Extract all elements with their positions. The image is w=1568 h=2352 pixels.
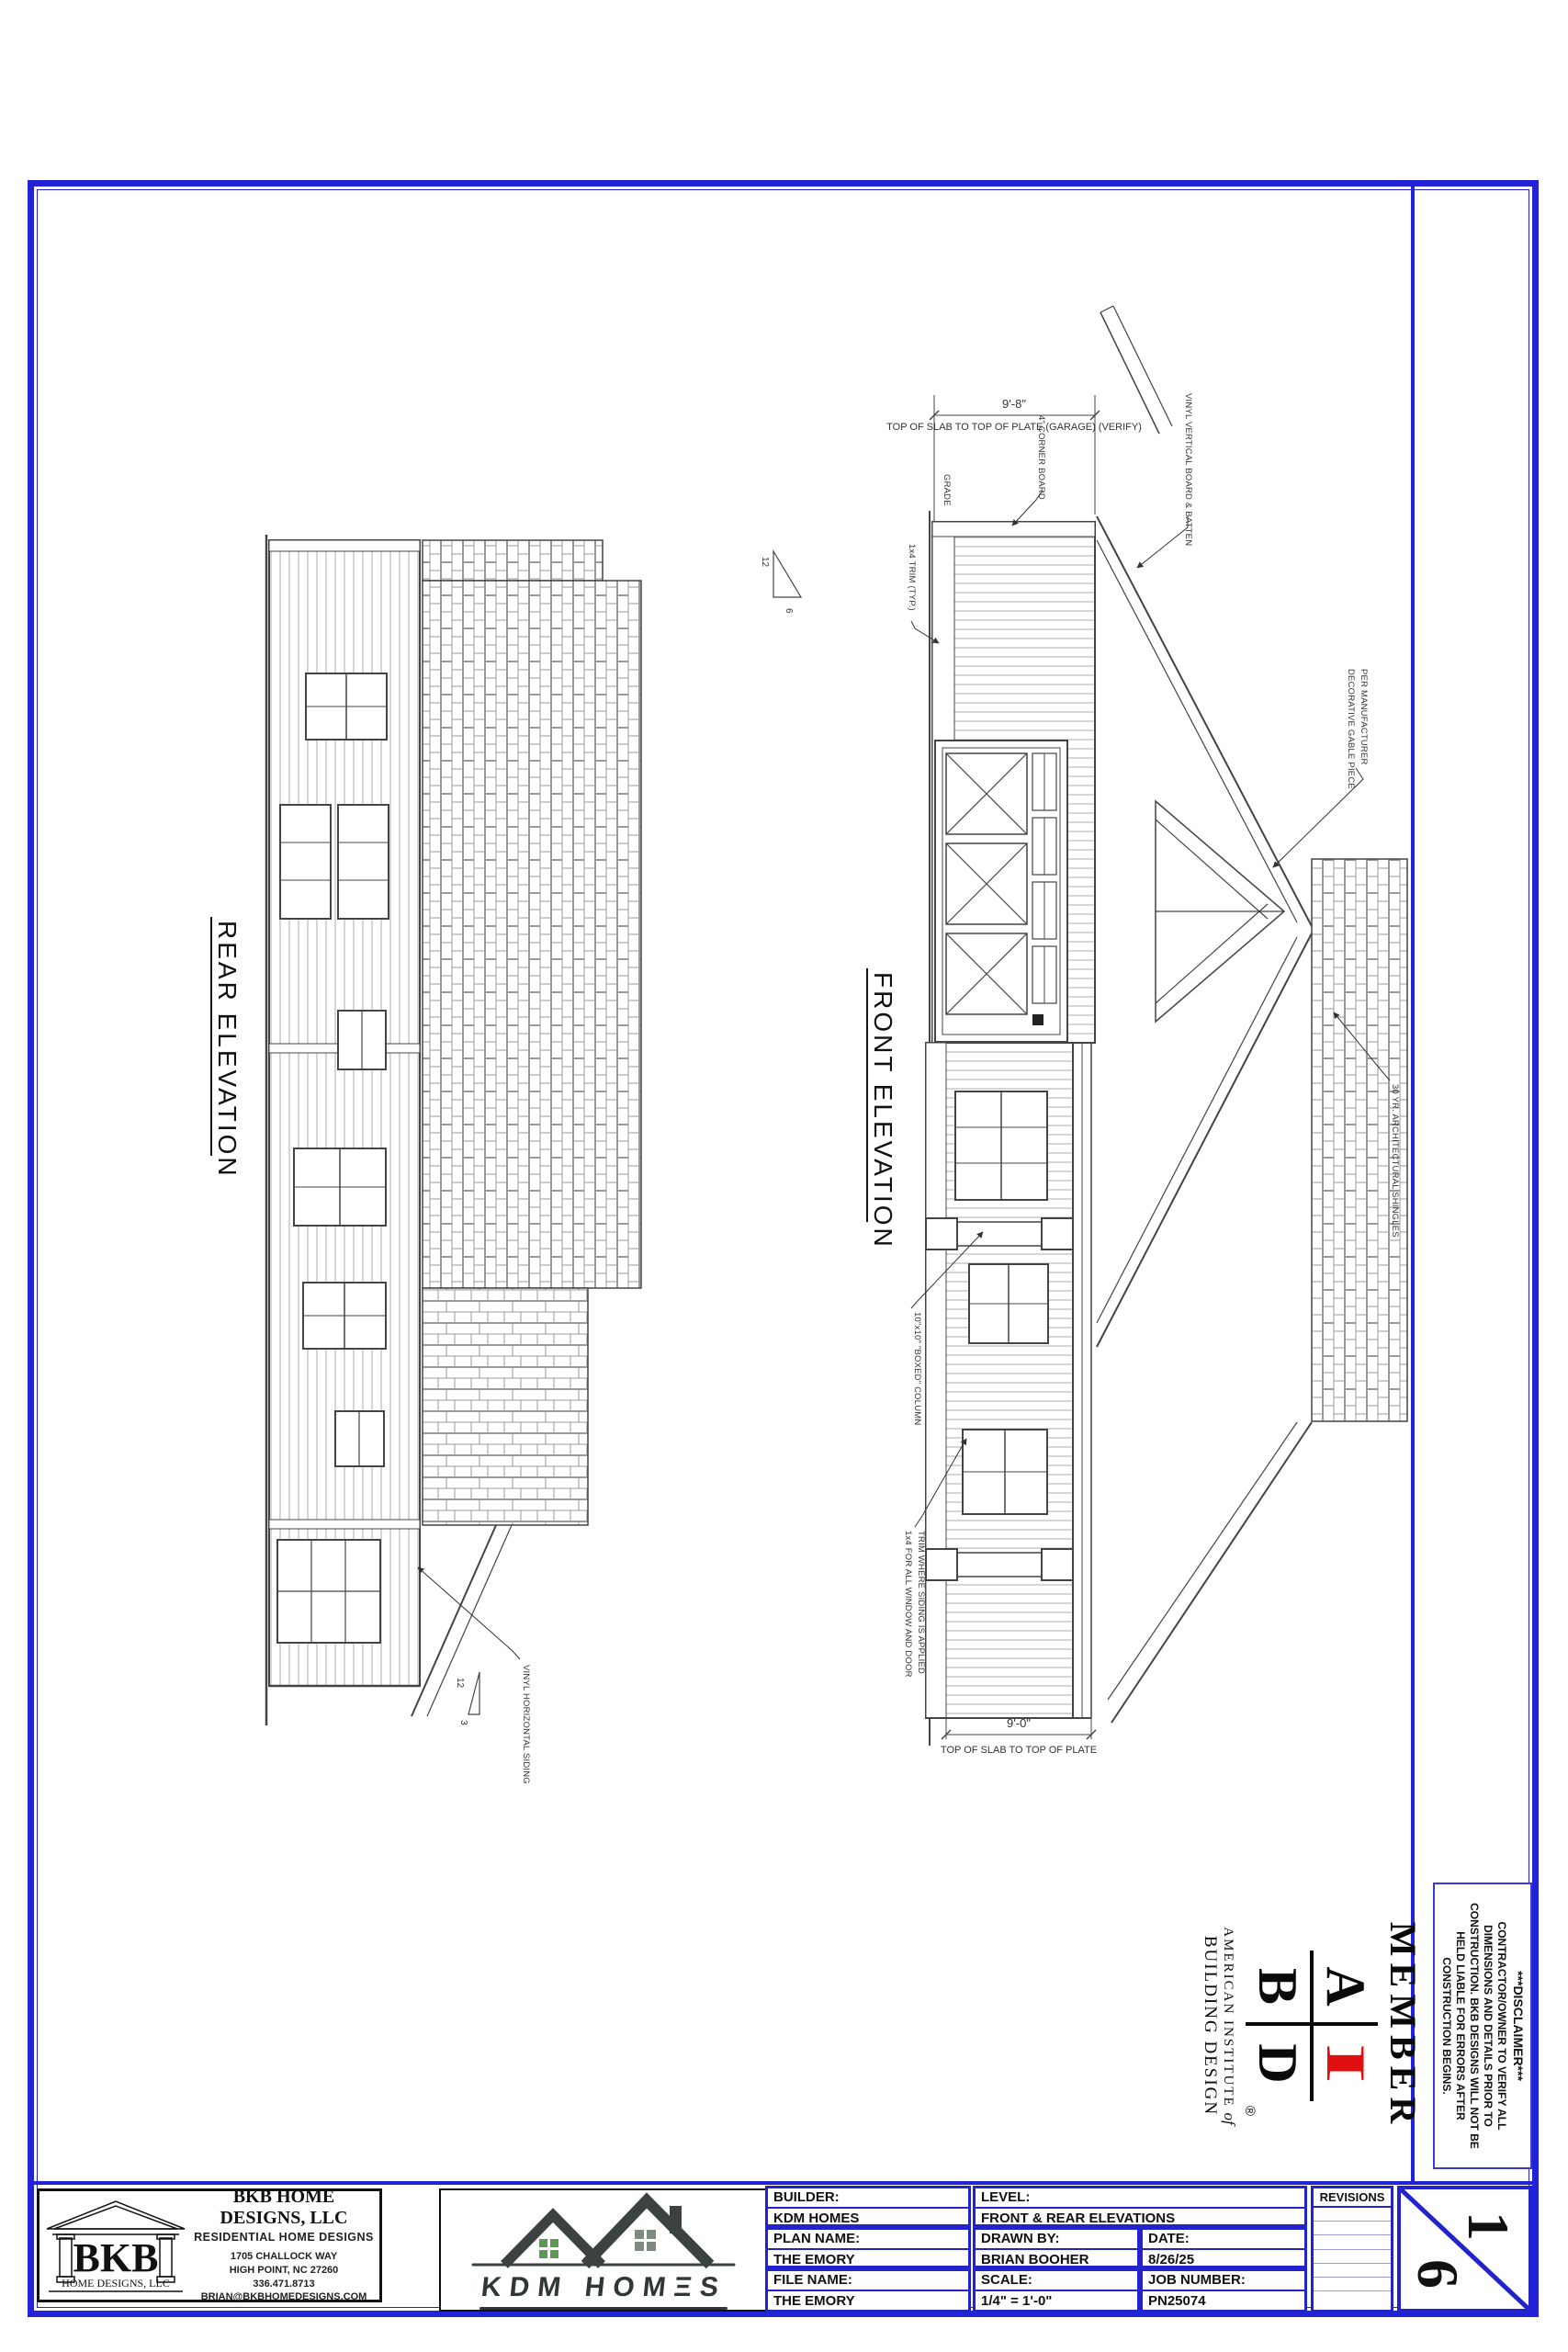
aibd-letter-a: A bbox=[1310, 1951, 1378, 2026]
bkb-address: 1705 CHALLOCK WAY HIGH POINT, NC 27260 3… bbox=[192, 2250, 376, 2304]
kdm-underline bbox=[479, 2307, 728, 2310]
revision-row bbox=[1314, 2222, 1391, 2235]
front-elevation-label: FRONT ELEVATION bbox=[869, 972, 897, 1249]
revision-row bbox=[1314, 2264, 1391, 2278]
aibd-caption: AMERICAN INSTITUTE of BUILDING DESIGN bbox=[1200, 1927, 1238, 2124]
drawing-sheet: 12 3 VINYL HORIZONTAL SIDING REAR ELEVAT… bbox=[0, 0, 1568, 2352]
rear-roof-lower bbox=[423, 1288, 588, 1525]
member-label: MEMBER bbox=[1382, 1922, 1425, 2130]
garage-door bbox=[935, 741, 1067, 1042]
builder-label: BUILDER: bbox=[768, 2188, 968, 2209]
corner-board-annotation: 4" CORNER BOARD bbox=[1036, 415, 1046, 500]
gable-piece-annotation-1: DECORATIVE GABLE PIECE bbox=[1346, 669, 1356, 789]
bkb-logo: BKB HOME DESIGNS, LLC bbox=[39, 2194, 192, 2297]
main-dim-label: TOP OF SLAB TO TOP OF PLATE bbox=[941, 1745, 1097, 1756]
garage-dim-label: TOP OF SLAB TO TOP OF PLATE (GARAGE) (VE… bbox=[886, 422, 1142, 433]
disclaimer-box: ***DISCLAIMER*** CONTRACTOR/OWNER TO VER… bbox=[1433, 1883, 1532, 2169]
bkb-designer-block: BKB HOME DESIGNS, LLC BKB HOME DESIGNS, … bbox=[37, 2188, 382, 2302]
front-pitch-rise: 6 bbox=[784, 608, 794, 614]
sheet-count: 6 bbox=[1408, 2259, 1467, 2289]
grade-annotation: GRADE bbox=[942, 474, 952, 506]
scale-label: SCALE: bbox=[976, 2271, 1137, 2291]
board-batten-leader bbox=[1137, 516, 1188, 568]
revision-row bbox=[1314, 2278, 1391, 2291]
siding-annotation: VINYL HORIZONTAL SIDING bbox=[521, 1665, 531, 1784]
siding-leader bbox=[418, 1567, 520, 1659]
window-trim-annotation-1: 1x4 FOR ALL WINDOW AND DOOR bbox=[903, 1531, 913, 1678]
date-label: DATE: bbox=[1143, 2230, 1304, 2250]
revisions-label: REVISIONS bbox=[1314, 2188, 1391, 2208]
bkb-contact: BKB HOME DESIGNS, LLC RESIDENTIAL HOME D… bbox=[192, 2187, 379, 2304]
rear-elevation-drawing bbox=[266, 535, 641, 1725]
date-value: 8/26/25 bbox=[1143, 2250, 1304, 2270]
rear-roof-upper-step bbox=[423, 540, 603, 581]
rear-pitch-marker bbox=[468, 1672, 479, 1714]
aibd-letter-b: B bbox=[1246, 1951, 1310, 2026]
bkb-logo-text: BKB bbox=[73, 2235, 159, 2280]
rear-pitch-run: 12 bbox=[455, 1678, 465, 1689]
main-dim-value: 9'-0" bbox=[1007, 1716, 1031, 1730]
revision-row bbox=[1314, 2291, 1391, 2304]
gable-piece-annotation-2: PER MANUFACTURER bbox=[1359, 669, 1369, 765]
disclaimer-body: CONTRACTOR/OWNER TO VERIFY ALL DIMENSION… bbox=[1439, 1892, 1508, 2160]
drawn-by-label: DRAWN BY: bbox=[976, 2230, 1137, 2250]
aibd-logo: A I B D ® bbox=[1246, 1951, 1378, 2101]
sheet-number: 1 bbox=[1459, 2211, 1517, 2241]
kdm-logo bbox=[466, 2191, 741, 2270]
aibd-letter-i: I bbox=[1310, 2026, 1378, 2101]
front-pitch-marker bbox=[773, 551, 801, 597]
bkb-name: BKB HOME DESIGNS, LLC bbox=[192, 2187, 376, 2229]
disclaimer-title: ***DISCLAIMER*** bbox=[1511, 1892, 1526, 2160]
file-name-label: FILE NAME: bbox=[768, 2271, 968, 2291]
job-number-value: PN25074 bbox=[1143, 2291, 1304, 2312]
rear-pitch-rise: 3 bbox=[458, 1720, 468, 1725]
revision-row bbox=[1314, 2250, 1391, 2264]
level-value: FRONT & REAR ELEVATIONS bbox=[976, 2209, 1304, 2229]
bkb-logo-sub: HOME DESIGNS, LLC bbox=[62, 2277, 170, 2290]
kdm-builder-block: KDM HOMΞS bbox=[439, 2188, 768, 2312]
builder-value: KDM HOMES bbox=[768, 2209, 968, 2229]
column-annotation: 10"x10" "BOXED" COLUMN bbox=[912, 1312, 922, 1425]
shingles-annotation: 30 YR. ARCHITECTURAL SHINGLES bbox=[1390, 1084, 1400, 1238]
plan-name-label: PLAN NAME: bbox=[768, 2230, 968, 2250]
front-windows bbox=[955, 1091, 1048, 1514]
member-aibd-block: ***DISCLAIMER*** CONTRACTOR/OWNER TO VER… bbox=[1168, 1876, 1532, 2176]
garage-dim-value: 9'-8" bbox=[1002, 397, 1026, 411]
garage-door-handle bbox=[1032, 1014, 1043, 1025]
level-label: LEVEL: bbox=[976, 2188, 1304, 2209]
front-elevation-drawing bbox=[773, 306, 1407, 1746]
front-pitch-run: 12 bbox=[760, 557, 770, 568]
bkb-tagline: RESIDENTIAL HOME DESIGNS bbox=[192, 2231, 376, 2244]
sheet-number-block: 1 6 bbox=[1397, 2186, 1532, 2312]
rear-elevation-label: REAR ELEVATION bbox=[213, 921, 242, 1179]
scale-value: 1/4" = 1'-0" bbox=[976, 2291, 1137, 2312]
plan-name-value: THE EMORY bbox=[768, 2250, 968, 2270]
window-trim-annotation-2: TRIM WHERE SIDING IS APPLIED bbox=[916, 1531, 926, 1674]
revisions-block: REVISIONS bbox=[1311, 2186, 1393, 2312]
rear-roof-main bbox=[423, 581, 641, 1288]
aibd-of: of bbox=[1221, 2112, 1238, 2124]
file-name-value: THE EMORY bbox=[768, 2291, 968, 2312]
job-number-label: JOB NUMBER: bbox=[1143, 2271, 1304, 2291]
decorative-gable-piece bbox=[1156, 801, 1284, 1022]
trim-annotation: 1x4 TRIM (TYP.) bbox=[907, 544, 917, 611]
drawn-by-value: BRIAN BOOHER bbox=[976, 2250, 1137, 2270]
revision-row bbox=[1314, 2208, 1391, 2222]
registered-mark: ® bbox=[1242, 2106, 1258, 2116]
aibd-letter-d: D bbox=[1246, 2026, 1310, 2101]
revision-row bbox=[1314, 2235, 1391, 2249]
kdm-logo-text: KDM HOMΞS bbox=[479, 2272, 728, 2303]
garage-dimension bbox=[930, 395, 1100, 522]
